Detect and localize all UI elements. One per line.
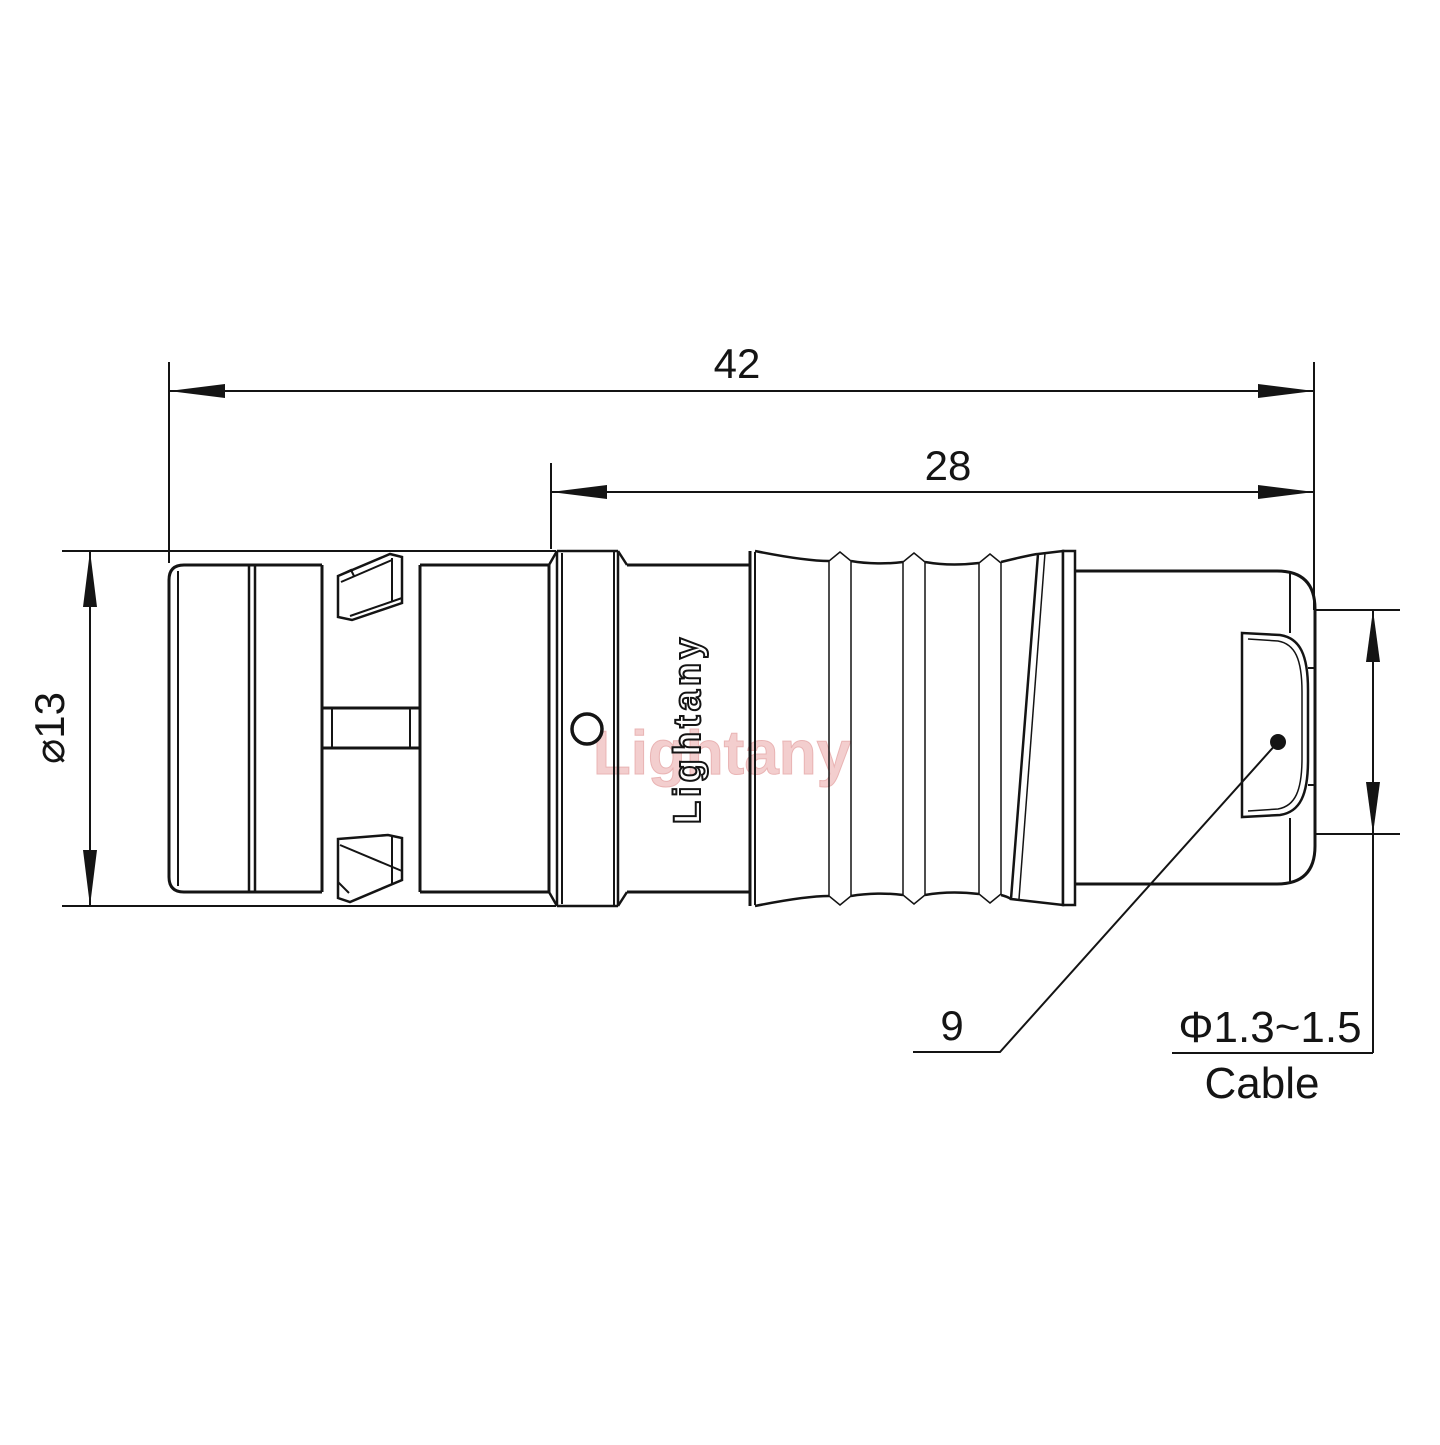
leader-9-value: 9 [940,1002,963,1049]
dim-cable-diameter-value: Φ1.3~1.5 [1178,1003,1361,1052]
dim-cable-word: Cable [1205,1059,1320,1108]
dim-rear-length-value: 28 [925,442,972,489]
dim-overall-length-value: 42 [714,340,761,387]
engraved-logo-text: Lightany [667,634,709,824]
dim-shell-diameter-value: ⌀13 [26,692,73,764]
drawing-canvas: Lightany Lightany [0,0,1440,1440]
vent-hole [572,714,602,744]
latch-middle-block [322,708,420,748]
watermark-text: Lightany [593,719,852,788]
dimension-rear-length: 28 [551,442,1314,549]
connector-technical-drawing: Lightany Lightany [0,0,1440,1440]
leader-dot [1270,734,1286,750]
